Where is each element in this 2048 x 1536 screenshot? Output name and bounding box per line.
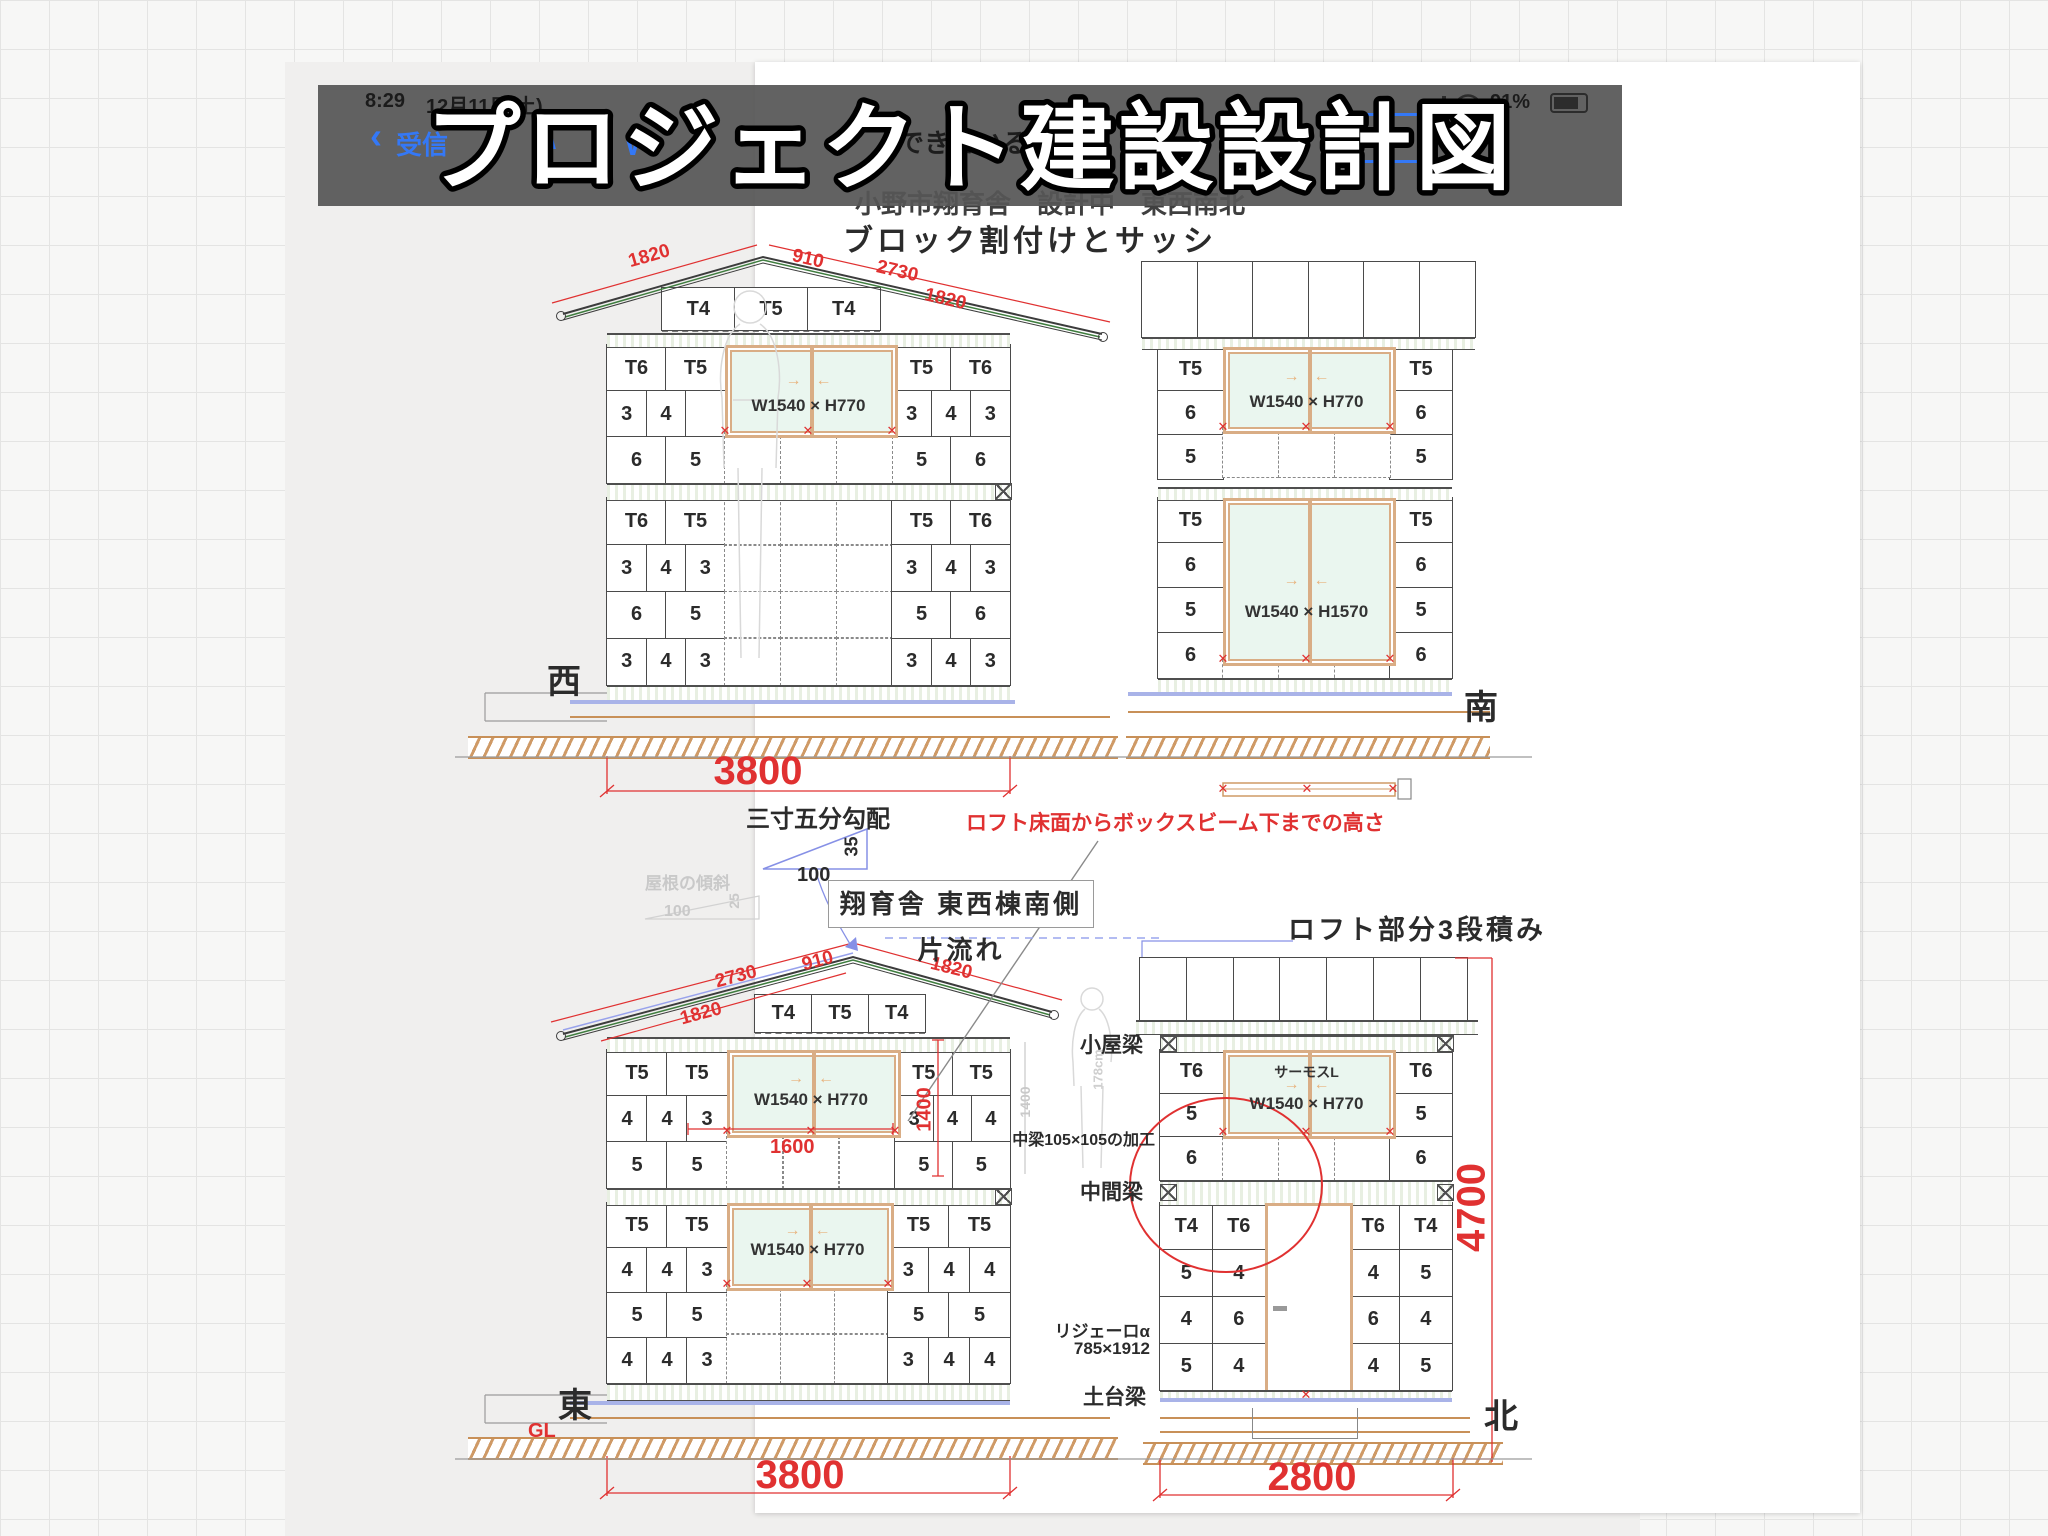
mid-beam-note: 中梁105×105の加工: [955, 1126, 1155, 1150]
beam-end-x: [1437, 1035, 1454, 1052]
east-label: 東: [558, 1378, 592, 1427]
north-title: ロフト部分3段積み: [1288, 908, 1546, 947]
east-dim-1400: 1400: [914, 1070, 937, 1150]
sheet-title: ブロック割付けとサッシ: [795, 216, 1265, 260]
north-base-dim: 2800: [1252, 1455, 1372, 1500]
whiteboard-canvas[interactable]: { "status_bar":{"time":"8:29","date":"12…: [0, 0, 2048, 1536]
roof-slope-run: 100: [664, 903, 691, 921]
sticker-title-text: プロジェクト建設設計図: [425, 96, 1514, 202]
door-size-label: 785×1912: [1020, 1339, 1150, 1359]
roof-beam-label: 小屋梁: [1080, 1029, 1143, 1059]
north-height-dim: 4700: [1450, 1148, 1495, 1268]
red-x-mark: ✕: [1300, 782, 1314, 796]
slope-rise: 35: [842, 827, 863, 867]
south-upper-window-size: W1540 × H770: [1223, 392, 1390, 412]
roof-slope-rise: 25: [726, 883, 742, 919]
mid-beam-label: 中間梁: [1080, 1176, 1143, 1206]
north-label: 北: [1484, 1389, 1518, 1438]
east-upper-window-size: W1540 × H770: [727, 1090, 895, 1110]
east-dim-1600: 1600: [770, 1136, 815, 1159]
red-x-mark: ✕: [1383, 1125, 1397, 1139]
west-window-size: W1540 × H770: [725, 396, 892, 416]
red-x-mark: ✕: [1216, 1125, 1230, 1139]
beam-end-x: [995, 483, 1012, 500]
south-label: 南: [1464, 680, 1498, 729]
red-x-mark: ✕: [1386, 782, 1400, 796]
slope-label: 三寸五分勾配: [746, 799, 890, 834]
base-beam-label: 土台梁: [1083, 1381, 1146, 1411]
svg-text:2730: 2730: [874, 256, 920, 286]
sticker-title-svg: プロジェクト建設設計図: [318, 85, 1622, 206]
svg-text:1820: 1820: [626, 240, 672, 272]
east-lower-window-size: W1540 × H770: [727, 1240, 888, 1260]
south-lower-window-size: W1540 × H1570: [1223, 602, 1390, 622]
red-x-mark: ✕: [881, 1277, 895, 1291]
figure-height-label: 178cm: [1091, 1040, 1106, 1100]
red-x-mark: ✕: [720, 1277, 734, 1291]
red-x-mark: ✕: [1383, 420, 1397, 434]
east-gl-label: GL: [528, 1420, 556, 1443]
title-banner: 8:29 12月11日(土) 91% ‹ 受信 ∧ ∨ できている プロジェクト…: [318, 85, 1622, 206]
red-x-mark: ✕: [1299, 1388, 1313, 1402]
sash-arrows: →←: [727, 1070, 895, 1088]
west-base-dim: 3800: [703, 749, 813, 794]
north-window-size: W1540 × H770: [1223, 1094, 1390, 1114]
red-x-mark: ✕: [1299, 420, 1313, 434]
beam-end-x: [995, 1188, 1012, 1205]
roof-slope-label: 屋根の傾斜: [645, 869, 730, 894]
west-label: 西: [547, 654, 581, 703]
red-x-mark: ✕: [1299, 1125, 1313, 1139]
red-x-mark: ✕: [885, 424, 899, 438]
beam-end-x: [1160, 1035, 1177, 1052]
red-x-mark: ✕: [801, 424, 815, 438]
east-base-dim: 3800: [745, 1453, 855, 1498]
svg-text:910: 910: [800, 947, 836, 975]
red-x-mark: ✕: [1216, 420, 1230, 434]
drawing-caption-box: 翔育舎 東西棟南側片流れ: [828, 880, 1094, 928]
red-x-mark: ✕: [1216, 782, 1230, 796]
red-x-mark: ✕: [1383, 652, 1397, 666]
beam-end-x: [1160, 1184, 1177, 1201]
sash-arrows: →←: [1223, 572, 1390, 590]
sash-arrows: →←: [1223, 368, 1390, 386]
red-x-mark: ✕: [1299, 652, 1313, 666]
slope-run: 100: [797, 864, 830, 887]
red-x-mark: ✕: [800, 1277, 814, 1291]
red-x-mark: ✕: [888, 1124, 902, 1138]
red-x-mark: ✕: [718, 424, 732, 438]
sash-arrows: →←: [1223, 1076, 1390, 1094]
red-x-mark: ✕: [720, 1124, 734, 1138]
red-x-mark: ✕: [1216, 652, 1230, 666]
svg-text:1820: 1820: [678, 998, 724, 1029]
sash-arrows: →←: [727, 1222, 888, 1240]
sash-arrows: →←: [725, 372, 892, 390]
loft-note: ロフト床面からボックスビーム下までの高さ: [966, 807, 1385, 837]
